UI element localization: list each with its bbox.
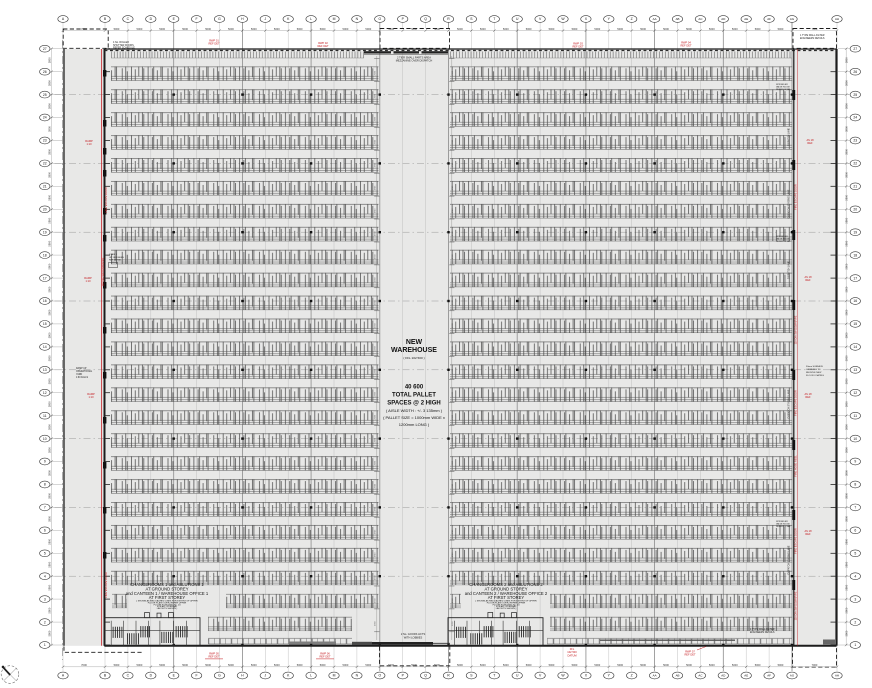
- svg-text:5800: 5800: [845, 447, 849, 453]
- svg-text:27: 27: [43, 47, 47, 51]
- svg-text:FIRE ESCAPE DOOR: FIRE ESCAPE DOOR: [104, 572, 108, 598]
- svg-text:5800: 5800: [845, 309, 849, 315]
- svg-text:24: 24: [43, 116, 47, 120]
- svg-text:4: 4: [44, 574, 46, 578]
- svg-text:17: 17: [853, 276, 857, 280]
- svg-text:5800: 5800: [48, 126, 52, 132]
- svg-text:5000: 5000: [732, 663, 738, 667]
- svg-text:5800: 5800: [48, 515, 52, 521]
- svg-text:Q: Q: [424, 17, 427, 21]
- svg-text:J: J: [264, 674, 266, 678]
- svg-text:DATUM: DATUM: [567, 653, 576, 657]
- svg-text:22: 22: [853, 162, 857, 166]
- svg-text:T: T: [493, 674, 495, 678]
- svg-text:5800: 5800: [845, 355, 849, 361]
- svg-text:REF DET: REF DET: [319, 655, 331, 659]
- svg-text:FIRE ESCAPE DOOR: FIRE ESCAPE DOOR: [794, 184, 798, 210]
- svg-text:5000: 5000: [572, 27, 578, 31]
- svg-text:5000: 5000: [205, 27, 211, 31]
- svg-text:25: 25: [43, 93, 47, 97]
- svg-text:9: 9: [44, 460, 46, 464]
- svg-text:FIRE HOSE REEL: FIRE HOSE REEL: [794, 455, 798, 477]
- svg-text:5000: 5000: [480, 663, 486, 667]
- svg-text:5000: 5000: [434, 27, 440, 31]
- svg-text:REF DET: REF DET: [208, 42, 220, 46]
- svg-text:AD: AD: [721, 17, 725, 21]
- svg-text:AF: AF: [767, 17, 771, 21]
- svg-text:WITH LOBBIES: WITH LOBBIES: [404, 635, 423, 639]
- svg-text:9: 9: [854, 460, 856, 464]
- svg-text:20: 20: [43, 208, 47, 212]
- svg-text:5000: 5000: [182, 27, 188, 31]
- svg-text:5000: 5000: [617, 663, 623, 667]
- svg-text:5800: 5800: [48, 538, 52, 544]
- svg-text:5800: 5800: [48, 171, 52, 177]
- svg-text:FIRE ESCAPE DOOR: FIRE ESCAPE DOOR: [794, 390, 798, 416]
- svg-text:5000: 5000: [778, 27, 784, 31]
- svg-text:10: 10: [43, 437, 47, 441]
- svg-text:13: 13: [853, 368, 857, 372]
- svg-text:1: 1: [44, 643, 46, 647]
- svg-text:11: 11: [854, 414, 858, 418]
- svg-text:REF DET: REF DET: [572, 45, 584, 49]
- svg-text:DISPATCH STAGING LANE: DISPATCH STAGING LANE: [788, 189, 791, 218]
- svg-text:AT FIRST STOREY: AT FIRST STOREY: [488, 595, 525, 600]
- svg-text:REF DET: REF DET: [208, 655, 220, 659]
- svg-text:DISPATCH STAGING LANE: DISPATCH STAGING LANE: [788, 389, 791, 418]
- svg-text:5000: 5000: [686, 27, 692, 31]
- svg-text:5000: 5000: [572, 663, 578, 667]
- svg-text:VALVE ROOM: VALVE ROOM: [776, 86, 790, 89]
- svg-text:AA: AA: [653, 674, 657, 678]
- svg-text:ENGINEERS DETAILS: ENGINEERS DETAILS: [800, 37, 825, 40]
- svg-text:5000: 5000: [755, 27, 761, 31]
- svg-text:40 600: 40 600: [405, 385, 424, 391]
- svg-text:7000: 7000: [812, 663, 818, 667]
- svg-text:AD: AD: [721, 674, 725, 678]
- svg-text:5800: 5800: [845, 171, 849, 177]
- svg-text:5000: 5000: [388, 663, 394, 667]
- svg-text:5000: 5000: [365, 27, 371, 31]
- svg-text:5800: 5800: [48, 309, 52, 315]
- svg-text:5000: 5000: [274, 27, 280, 31]
- svg-text:5000: 5000: [411, 27, 417, 31]
- svg-text:2 No. GOODS LIFTS: 2 No. GOODS LIFTS: [401, 632, 426, 636]
- svg-text:1: 1: [854, 643, 856, 647]
- svg-text:5000: 5000: [640, 27, 646, 31]
- svg-text:5800: 5800: [845, 103, 849, 109]
- svg-text:5000: 5000: [732, 27, 738, 31]
- svg-text:26: 26: [43, 70, 47, 74]
- svg-text:5000: 5000: [594, 663, 600, 667]
- svg-text:5800: 5800: [845, 584, 849, 590]
- svg-text:AH: AH: [835, 674, 839, 678]
- svg-text:Q: Q: [424, 674, 427, 678]
- svg-text:16: 16: [853, 299, 857, 303]
- svg-text:5800: 5800: [48, 424, 52, 430]
- svg-text:5000: 5000: [686, 663, 692, 667]
- svg-text:AC: AC: [698, 17, 702, 21]
- svg-text:14: 14: [43, 345, 47, 349]
- svg-text:5800: 5800: [845, 126, 849, 132]
- svg-text:2: 2: [854, 620, 856, 624]
- svg-text:UP 18 RISERS: UP 18 RISERS: [109, 257, 124, 259]
- svg-text:1200mm LONG ): 1200mm LONG ): [399, 422, 430, 427]
- svg-text:5000: 5000: [663, 663, 669, 667]
- svg-text:3: 3: [44, 597, 46, 601]
- svg-text:5: 5: [44, 552, 46, 556]
- svg-text:22: 22: [43, 162, 47, 166]
- svg-text:7: 7: [44, 506, 46, 510]
- svg-text:5000: 5000: [320, 663, 326, 667]
- svg-text:5000: 5000: [365, 663, 371, 667]
- svg-text:FIRE ESCAPE DOOR: FIRE ESCAPE DOOR: [794, 528, 798, 554]
- svg-text:5800: 5800: [48, 194, 52, 200]
- svg-text:5800: 5800: [845, 148, 849, 154]
- svg-text:5800: 5800: [48, 378, 52, 384]
- svg-text:GRINDING TO: GRINDING TO: [806, 369, 821, 371]
- svg-text:AE: AE: [744, 17, 748, 21]
- svg-text:25: 25: [853, 93, 857, 97]
- svg-text:F: F: [196, 674, 198, 678]
- svg-text:110 DIA SW DOWNPIPE: 110 DIA SW DOWNPIPE: [794, 591, 798, 620]
- svg-text:1:60 FALLS: 1:60 FALLS: [76, 376, 88, 379]
- svg-text:REF DETAIL: REF DETAIL: [109, 259, 122, 262]
- svg-text:5000: 5000: [549, 663, 555, 667]
- svg-text:AE: AE: [744, 674, 748, 678]
- svg-text:27: 27: [853, 47, 857, 51]
- svg-text:7000: 7000: [81, 663, 87, 667]
- svg-text:REFER DETAIL: REFER DETAIL: [776, 88, 792, 91]
- svg-text:5000: 5000: [457, 27, 463, 31]
- svg-text:5000: 5000: [320, 27, 326, 31]
- svg-text:5800: 5800: [48, 401, 52, 407]
- svg-text:DISPATCH STAGING LANE: DISPATCH STAGING LANE: [788, 545, 791, 574]
- svg-text:5800: 5800: [845, 217, 849, 223]
- svg-text:5800: 5800: [48, 148, 52, 154]
- svg-text:T: T: [493, 17, 495, 21]
- svg-text:5800: 5800: [48, 263, 52, 269]
- svg-text:18: 18: [853, 253, 857, 257]
- svg-text:5800: 5800: [48, 103, 52, 109]
- svg-text:5800: 5800: [845, 424, 849, 430]
- svg-text:7000: 7000: [81, 27, 87, 31]
- svg-text:REFER DETAIL: REFER DETAIL: [776, 525, 792, 528]
- svg-text:5800: 5800: [845, 630, 849, 636]
- svg-text:5000: 5000: [251, 27, 257, 31]
- svg-text:5000: 5000: [549, 27, 555, 31]
- svg-text:5000: 5000: [434, 663, 440, 667]
- svg-text:5000: 5000: [228, 663, 234, 667]
- svg-text:5000: 5000: [159, 27, 165, 31]
- svg-text:5000: 5000: [457, 663, 463, 667]
- svg-text:5800: 5800: [845, 286, 849, 292]
- svg-text:18: 18: [43, 253, 47, 257]
- svg-text:L: L: [310, 17, 312, 21]
- svg-text:TOTAL PALLET: TOTAL PALLET: [392, 393, 436, 399]
- svg-text:8: 8: [44, 483, 46, 487]
- svg-text:5000: 5000: [388, 27, 394, 31]
- svg-text:26: 26: [853, 70, 857, 74]
- svg-text:LAYOUTS SHOWN ): LAYOUTS SHOWN ): [157, 607, 178, 610]
- svg-text:YARD: YARD: [76, 373, 83, 376]
- svg-text:5800: 5800: [845, 57, 849, 63]
- svg-text:5000: 5000: [182, 663, 188, 667]
- svg-text:5800: 5800: [48, 630, 52, 636]
- svg-text:REFER DETAIL: REFER DETAIL: [776, 240, 792, 243]
- svg-text:5800: 5800: [48, 470, 52, 476]
- svg-text:11: 11: [43, 414, 47, 418]
- svg-text:14: 14: [853, 345, 857, 349]
- svg-text:STAIR 1: STAIR 1: [109, 253, 118, 256]
- svg-text:5800: 5800: [48, 240, 52, 246]
- svg-text:5800: 5800: [48, 561, 52, 567]
- svg-text:NEW: NEW: [406, 339, 423, 346]
- svg-text:5000: 5000: [640, 663, 646, 667]
- svg-text:1:10: 1:10: [85, 279, 91, 283]
- svg-text:5000: 5000: [205, 663, 211, 667]
- svg-text:VALVE ROOM: VALVE ROOM: [776, 523, 790, 526]
- svg-text:( PALLET SIZE = 1000mm WIDE x: ( PALLET SIZE = 1000mm WIDE x: [383, 415, 445, 420]
- svg-text:5000: 5000: [755, 663, 761, 667]
- svg-text:13: 13: [43, 368, 47, 372]
- svg-text:21: 21: [43, 185, 47, 189]
- svg-text:FIRE ESCAPE DOOR: FIRE ESCAPE DOOR: [104, 187, 108, 213]
- svg-text:OPERATIONAL: OPERATIONAL: [76, 370, 93, 373]
- svg-text:5000: 5000: [137, 27, 143, 31]
- svg-text:ENGINEERS DETAILS: ENGINEERS DETAILS: [750, 631, 775, 634]
- svg-text:5: 5: [854, 552, 856, 556]
- svg-text:G: G: [218, 17, 221, 21]
- svg-text:15: 15: [853, 322, 857, 326]
- svg-text:M: M: [333, 674, 336, 678]
- svg-text:5000: 5000: [503, 663, 509, 667]
- svg-text:5000: 5000: [709, 663, 715, 667]
- svg-text:5000: 5000: [114, 27, 120, 31]
- svg-text:1:10: 1:10: [88, 395, 94, 399]
- svg-text:L: L: [310, 674, 312, 678]
- svg-text:5000: 5000: [663, 27, 669, 31]
- svg-text:5000: 5000: [274, 663, 280, 667]
- svg-text:5800: 5800: [845, 332, 849, 338]
- svg-text:5800: 5800: [48, 286, 52, 292]
- svg-text:7: 7: [854, 506, 856, 510]
- svg-text:5800: 5800: [48, 584, 52, 590]
- svg-text:5800: 5800: [845, 240, 849, 246]
- svg-text:5000: 5000: [251, 663, 257, 667]
- svg-text:19: 19: [43, 230, 47, 234]
- svg-text:F: F: [196, 17, 198, 21]
- svg-text:8: 8: [854, 483, 856, 487]
- svg-text:17: 17: [43, 276, 47, 280]
- svg-text:LAYOUTS SHOWN ): LAYOUTS SHOWN ): [496, 607, 517, 610]
- svg-text:5800: 5800: [48, 607, 52, 613]
- svg-text:5000: 5000: [594, 27, 600, 31]
- svg-text:O: O: [378, 674, 381, 678]
- svg-text:10: 10: [853, 437, 857, 441]
- svg-text:WAREHOUSE: WAREHOUSE: [391, 347, 437, 354]
- svg-text:7000: 7000: [812, 27, 818, 31]
- svg-text:5000: 5000: [480, 27, 486, 31]
- svg-text:6: 6: [44, 529, 46, 533]
- svg-text:REF DET: REF DET: [680, 44, 692, 48]
- svg-text:5000: 5000: [343, 27, 349, 31]
- svg-text:5000: 5000: [526, 27, 532, 31]
- svg-text:20: 20: [853, 208, 857, 212]
- svg-text:REF: REF: [805, 395, 811, 399]
- svg-text:AT FIRST STOREY: AT FIRST STOREY: [149, 595, 186, 600]
- svg-text:21: 21: [853, 185, 857, 189]
- svg-text:5800: 5800: [845, 470, 849, 476]
- svg-text:5800: 5800: [845, 378, 849, 384]
- svg-text:5800: 5800: [48, 217, 52, 223]
- svg-text:AC: AC: [698, 674, 702, 678]
- svg-text:1:10: 1:10: [86, 142, 92, 146]
- svg-text:5000: 5000: [617, 27, 623, 31]
- svg-text:5800: 5800: [845, 194, 849, 200]
- svg-text:MEZZANINE OVER DISPATCH: MEZZANINE OVER DISPATCH: [396, 59, 433, 63]
- svg-text:AH: AH: [835, 17, 839, 21]
- svg-text:SPACES @ 2 HIGH: SPACES @ 2 HIGH: [387, 401, 440, 407]
- svg-text:16: 16: [43, 299, 47, 303]
- svg-text:5000: 5000: [137, 663, 143, 667]
- svg-text:5000: 5000: [778, 663, 784, 667]
- svg-text:12: 12: [853, 391, 857, 395]
- svg-text:G: G: [218, 674, 221, 678]
- svg-text:5000: 5000: [709, 27, 715, 31]
- svg-text:O: O: [378, 17, 381, 21]
- svg-text:12: 12: [43, 391, 47, 395]
- svg-text:2: 2: [44, 620, 46, 624]
- svg-text:RECEIVE NEW: RECEIVE NEW: [806, 372, 822, 374]
- svg-text:Z: Z: [631, 17, 633, 21]
- svg-text:5000: 5000: [411, 663, 417, 667]
- svg-text:5800: 5800: [48, 447, 52, 453]
- svg-text:4: 4: [854, 574, 856, 578]
- svg-text:5000: 5000: [159, 663, 165, 667]
- svg-text:23: 23: [853, 139, 857, 143]
- svg-text:( FFL 102 500 ): ( FFL 102 500 ): [403, 356, 424, 360]
- svg-text:5800: 5800: [845, 561, 849, 567]
- svg-text:5800: 5800: [48, 492, 52, 498]
- svg-text:AB: AB: [676, 674, 680, 678]
- svg-text:30mm SURFACE: 30mm SURFACE: [806, 365, 824, 368]
- svg-text:REFER SCHEDULE: REFER SCHEDULE: [113, 46, 135, 49]
- svg-text:AF: AF: [767, 674, 771, 678]
- svg-text:5800: 5800: [845, 401, 849, 407]
- svg-text:3: 3: [854, 597, 856, 601]
- svg-text:6: 6: [854, 529, 856, 533]
- svg-text:23: 23: [43, 139, 47, 143]
- svg-text:5800: 5800: [845, 607, 849, 613]
- svg-text:15: 15: [43, 322, 47, 326]
- svg-text:5800: 5800: [48, 355, 52, 361]
- svg-text:5800: 5800: [48, 332, 52, 338]
- svg-text:DISPATCH LANE: DISPATCH LANE: [788, 261, 791, 279]
- svg-text:5800: 5800: [845, 515, 849, 521]
- svg-text:REF DET: REF DET: [684, 653, 696, 657]
- svg-text:Z: Z: [631, 674, 633, 678]
- svg-text:5000: 5000: [503, 27, 509, 31]
- svg-text:M: M: [333, 17, 336, 21]
- svg-text:REF: REF: [805, 532, 811, 536]
- svg-text:110 DIA SW DOWNPIPE: 110 DIA SW DOWNPIPE: [794, 315, 798, 344]
- svg-text:110 DIA SW DOWNPIPE: 110 DIA SW DOWNPIPE: [101, 257, 105, 286]
- svg-text:5000: 5000: [343, 663, 349, 667]
- svg-text:5000: 5000: [114, 663, 120, 667]
- svg-text:VALVE ROOM: VALVE ROOM: [776, 238, 790, 241]
- svg-text:5000: 5000: [228, 27, 234, 31]
- svg-text:5800: 5800: [845, 492, 849, 498]
- svg-text:J: J: [264, 17, 266, 21]
- svg-text:5800: 5800: [48, 57, 52, 63]
- svg-text:5800: 5800: [845, 538, 849, 544]
- svg-text:( AISLE WIDTH : +/- 3 135mm ): ( AISLE WIDTH : +/- 3 135mm ): [386, 408, 443, 413]
- svg-text:5000: 5000: [297, 663, 303, 667]
- svg-text:5800: 5800: [845, 263, 849, 269]
- svg-text:5000: 5000: [297, 27, 303, 31]
- svg-text:REF DET: REF DET: [317, 44, 329, 48]
- svg-text:FLOOR COATING: FLOOR COATING: [806, 374, 824, 377]
- svg-text:REF: REF: [807, 141, 813, 145]
- svg-text:5800: 5800: [48, 80, 52, 86]
- svg-text:19: 19: [853, 230, 857, 234]
- svg-text:24: 24: [853, 116, 857, 120]
- svg-text:AB: AB: [676, 17, 680, 21]
- svg-text:REF: REF: [805, 278, 811, 282]
- svg-text:5800: 5800: [845, 80, 849, 86]
- svg-text:5000: 5000: [526, 663, 532, 667]
- svg-text:RAMP UP: RAMP UP: [76, 367, 87, 370]
- svg-text:AA: AA: [653, 17, 657, 21]
- svg-text:DISPATCH LANE: DISPATCH LANE: [788, 128, 791, 146]
